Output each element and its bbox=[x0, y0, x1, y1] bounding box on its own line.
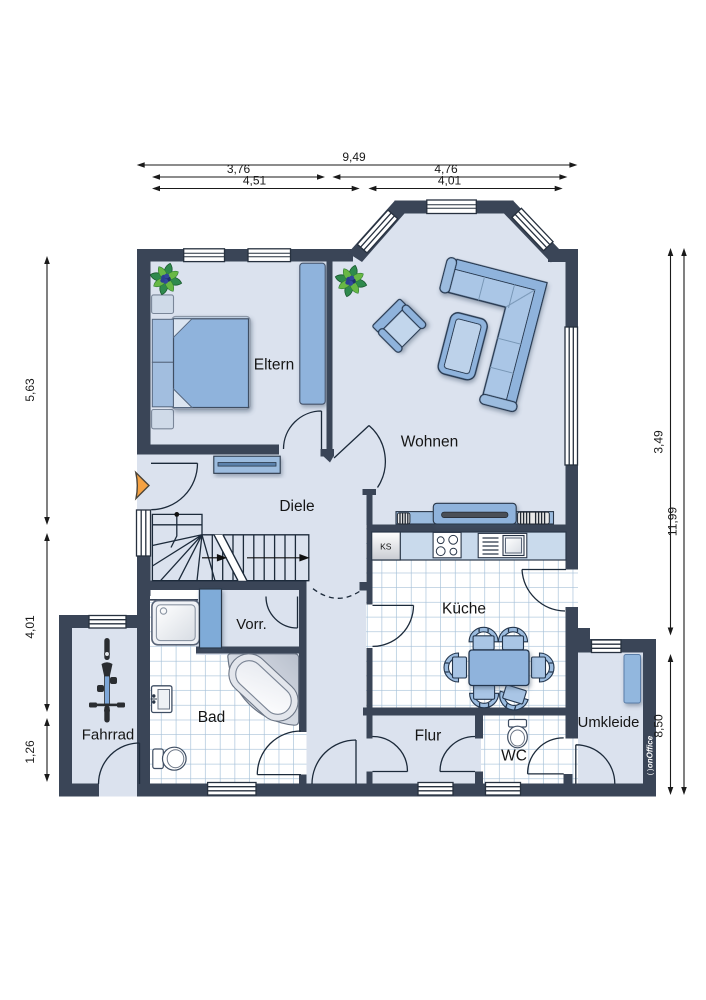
svg-text:Umkleide: Umkleide bbox=[578, 715, 640, 731]
svg-text:Flur: Flur bbox=[415, 728, 442, 745]
svg-text:Küche: Küche bbox=[442, 601, 486, 618]
svg-text:Wohnen: Wohnen bbox=[401, 434, 458, 451]
svg-text:Bad: Bad bbox=[198, 709, 226, 726]
svg-text:3,49: 3,49 bbox=[652, 430, 666, 454]
svg-text:Diele: Diele bbox=[279, 498, 314, 515]
svg-text:WC: WC bbox=[501, 748, 527, 765]
svg-text:8,50: 8,50 bbox=[652, 714, 666, 738]
svg-text:KS: KS bbox=[380, 542, 392, 552]
svg-text:4,01: 4,01 bbox=[23, 615, 37, 639]
svg-text:Eltern: Eltern bbox=[254, 357, 295, 374]
svg-text:onOffice: onOffice bbox=[646, 735, 655, 768]
svg-text:11,99: 11,99 bbox=[666, 507, 680, 536]
svg-text:9,49: 9,49 bbox=[342, 150, 366, 164]
svg-text:4,01: 4,01 bbox=[438, 174, 462, 188]
svg-text:Fahrrad: Fahrrad bbox=[82, 727, 135, 744]
svg-text:4,51: 4,51 bbox=[243, 174, 267, 188]
svg-text:5,63: 5,63 bbox=[23, 378, 37, 402]
svg-text:Vorr.: Vorr. bbox=[236, 617, 266, 633]
svg-text:( ): ( ) bbox=[648, 769, 655, 776]
svg-text:1,26: 1,26 bbox=[23, 740, 37, 764]
